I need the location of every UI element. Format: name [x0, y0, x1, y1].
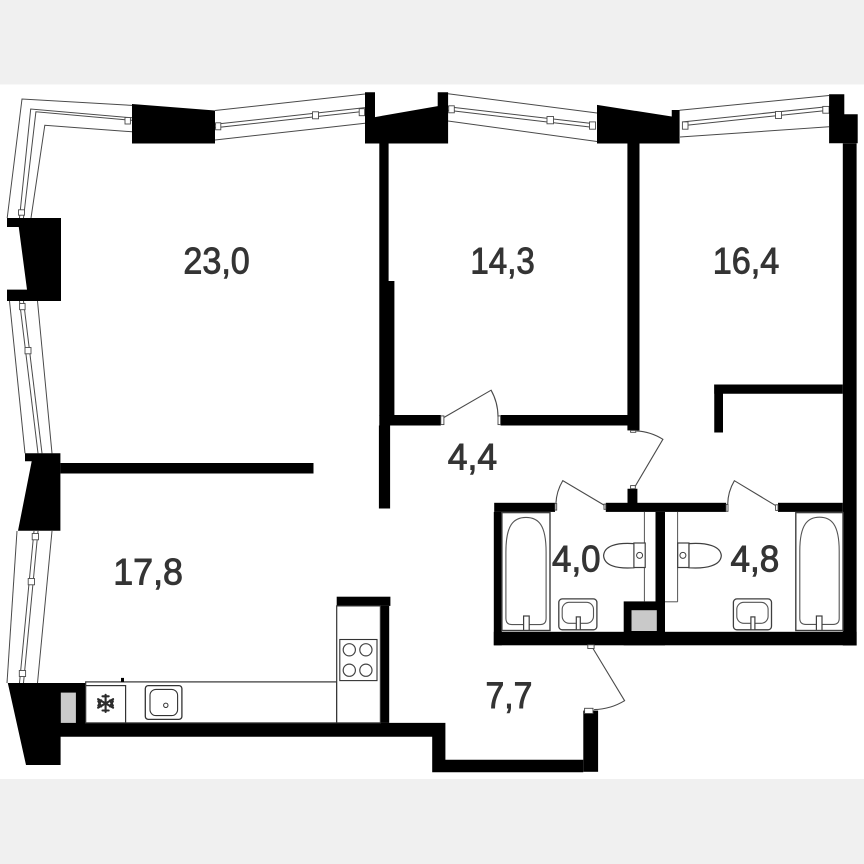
- svg-text:17,8: 17,8: [113, 552, 183, 593]
- svg-text:4,8: 4,8: [731, 538, 780, 579]
- svg-text:4,0: 4,0: [552, 538, 601, 579]
- svg-text:7,7: 7,7: [485, 675, 532, 716]
- svg-text:4,4: 4,4: [448, 436, 497, 477]
- svg-text:23,0: 23,0: [183, 240, 249, 281]
- svg-text:16,4: 16,4: [713, 240, 780, 281]
- svg-text:14,3: 14,3: [470, 240, 534, 281]
